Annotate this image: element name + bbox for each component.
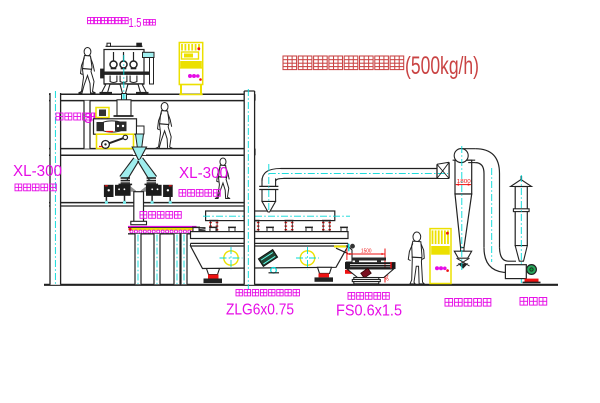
svg-text:ZLG6x0.75: ZLG6x0.75 (226, 302, 294, 319)
svg-text:FS0.6x1.5: FS0.6x1.5 (336, 303, 402, 320)
svg-text:(500kg/h): (500kg/h) (405, 52, 479, 80)
svg-text:XL-300: XL-300 (179, 165, 228, 182)
svg-text:XL-300: XL-300 (13, 163, 62, 180)
svg-text:1800: 1800 (457, 179, 471, 185)
svg-text:1500: 1500 (361, 249, 372, 255)
svg-text:1.5: 1.5 (129, 16, 142, 30)
